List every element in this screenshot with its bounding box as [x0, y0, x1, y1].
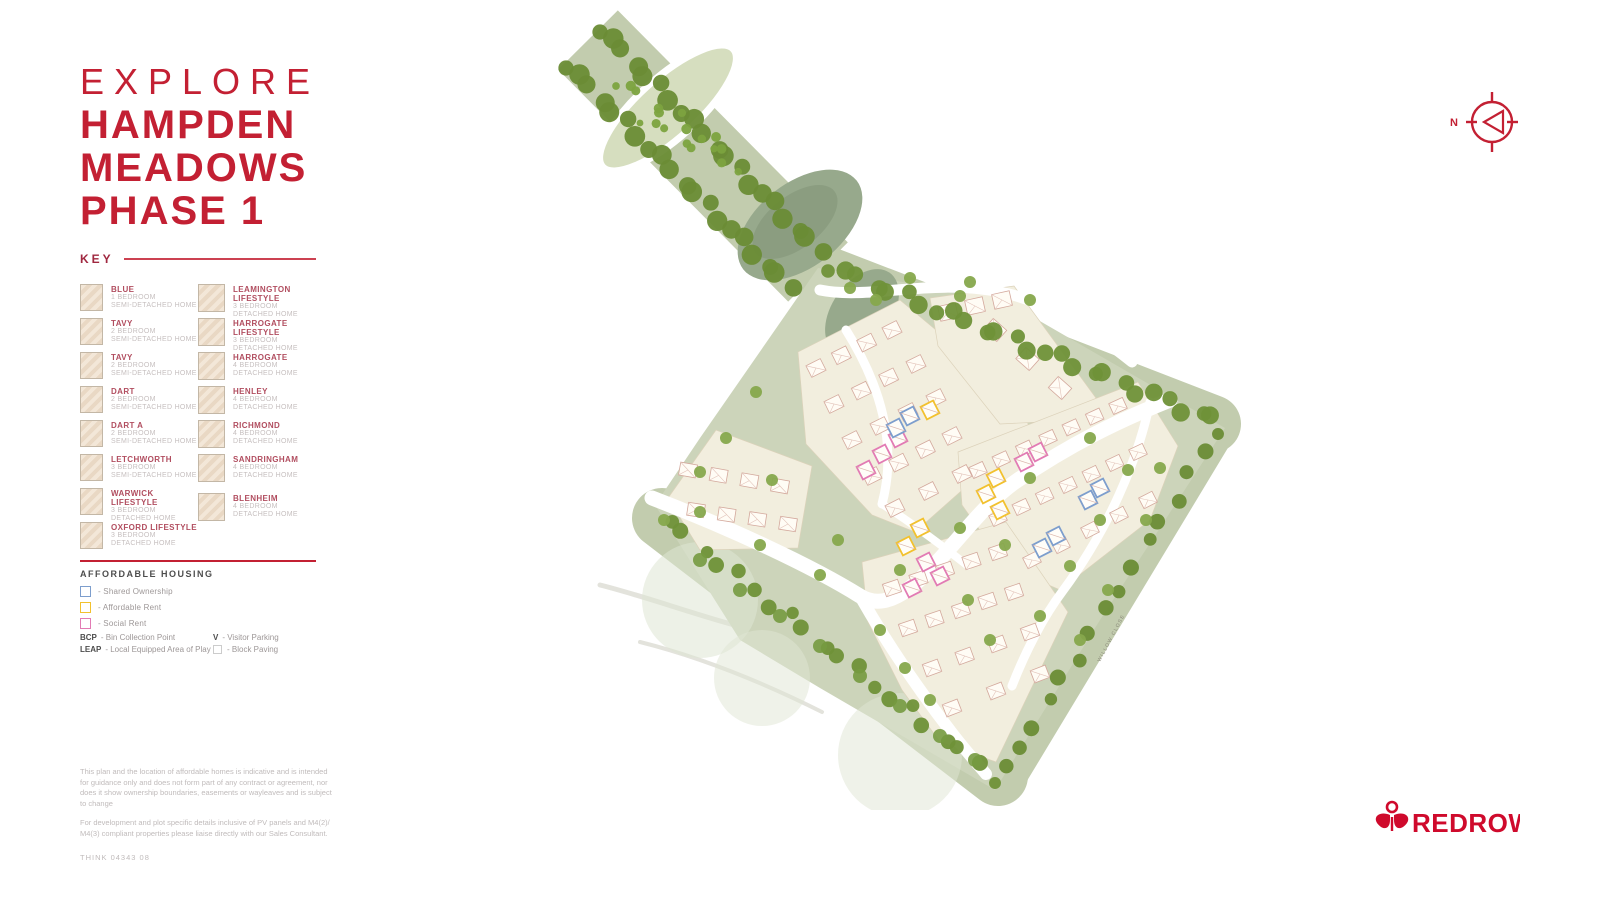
key-item[interactable]: TAVY2 BEDROOMSEMI-DETACHED HOME: [80, 318, 198, 344]
affordable-legend-label: - Social Rent: [98, 619, 146, 628]
site-plan-map[interactable]: WILLOW CLOSE: [540, 0, 1250, 810]
redrow-wordmark: REDROW: [1412, 808, 1520, 838]
house-plan-icon: [80, 284, 103, 311]
affordable-swatch-icon: [80, 586, 91, 597]
house-type-style: SEMI-DETACHED HOME: [111, 438, 197, 446]
house-type-style: SEMI-DETACHED HOME: [111, 370, 197, 378]
key-heading-label: KEY: [80, 252, 114, 266]
house-plan-icon: [198, 420, 225, 448]
visitor-parking-abbr: V: [213, 633, 218, 642]
house-type-bedrooms: 3 BEDROOM: [233, 303, 328, 311]
house-type-bedrooms: 4 BEDROOM: [233, 503, 298, 511]
key-item[interactable]: LEAMINGTON LIFESTYLE3 BEDROOMDETACHED HO…: [198, 284, 328, 310]
leap-abbr: LEAP: [80, 645, 101, 654]
key-item[interactable]: BLENHEIM4 BEDROOMDETACHED HOME: [198, 493, 328, 519]
house-plan-icon: [80, 488, 103, 515]
key-heading: KEY: [80, 252, 316, 266]
house-plan-icon: [198, 318, 225, 346]
house-type-name: OXFORD LIFESTYLE: [111, 523, 197, 532]
house-type-bedrooms: 4 BEDROOM: [233, 396, 298, 404]
key-heading-rule: [124, 258, 316, 260]
house-type-name: BLENHEIM: [233, 494, 298, 503]
header: EXPLORE HAMPDEN MEADOWS PHASE 1: [80, 60, 330, 233]
page-title-line-1: HAMPDEN: [80, 104, 330, 147]
house-type-style: SEMI-DETACHED HOME: [111, 472, 197, 480]
house-plan-icon: [198, 493, 225, 521]
key-item[interactable]: HARROGATE LIFESTYLE3 BEDROOMDETACHED HOM…: [198, 318, 328, 344]
north-compass-icon: N: [1420, 80, 1530, 170]
house-type-bedrooms: 1 BEDROOM: [111, 294, 197, 302]
key-item[interactable]: TAVY2 BEDROOMSEMI-DETACHED HOME: [80, 352, 198, 378]
house-plan-icon: [80, 522, 103, 549]
key-item[interactable]: WARWICK LIFESTYLE3 BEDROOMDETACHED HOME: [80, 488, 198, 514]
affordable-legend-row: - Shared Ownership: [80, 586, 330, 597]
key-item[interactable]: BLUE1 BEDROOMSEMI-DETACHED HOME: [80, 284, 198, 310]
affordable-legend-label: - Shared Ownership: [98, 587, 173, 596]
house-type-style: DETACHED HOME: [233, 511, 298, 519]
house-type-name: SANDRINGHAM: [233, 455, 298, 464]
house-type-name: WARWICK LIFESTYLE: [111, 489, 198, 507]
house-type-name: HARROGATE: [233, 353, 298, 362]
key-item[interactable]: OXFORD LIFESTYLE3 BEDROOMDETACHED HOME: [80, 522, 198, 548]
house-plan-icon: [80, 386, 103, 413]
house-plan-icon: [198, 352, 225, 380]
house-type-name: BLUE: [111, 285, 197, 294]
house-type-style: DETACHED HOME: [111, 540, 197, 548]
house-type-bedrooms: 4 BEDROOM: [233, 430, 298, 438]
house-plan-icon: [198, 454, 225, 482]
house-type-name: HENLEY: [233, 387, 298, 396]
page: EXPLORE HAMPDEN MEADOWS PHASE 1 KEY BLUE…: [0, 0, 1600, 900]
disclaimer-paragraph-1: This plan and the location of affordable…: [80, 767, 334, 809]
page-title-line-3: PHASE 1: [80, 190, 330, 233]
house-type-name: DART A: [111, 421, 197, 430]
house-type-style: DETACHED HOME: [233, 472, 298, 480]
house-type-name: HARROGATE LIFESTYLE: [233, 319, 328, 337]
house-type-bedrooms: 3 BEDROOM: [111, 532, 197, 540]
block-paving-swatch-icon: [213, 645, 222, 654]
house-type-style: DETACHED HOME: [233, 404, 298, 412]
house-type-bedrooms: 3 BEDROOM: [111, 464, 197, 472]
key-item[interactable]: SANDRINGHAM4 BEDROOMDETACHED HOME: [198, 454, 328, 480]
house-plan-icon: [198, 284, 225, 312]
house-type-bedrooms: 3 BEDROOM: [233, 337, 328, 345]
visitor-parking-text: - Visitor Parking: [222, 633, 278, 642]
page-kicker: EXPLORE: [80, 60, 330, 104]
key-item[interactable]: DART2 BEDROOMSEMI-DETACHED HOME: [80, 386, 198, 412]
disclaimer-paragraph-2: For development and plot specific detail…: [80, 818, 334, 839]
house-type-style: SEMI-DETACHED HOME: [111, 302, 197, 310]
affordable-legend-row: - Social Rent: [80, 618, 330, 629]
map-abbreviations: BCP - Bin Collection Point V - Visitor P…: [80, 633, 330, 657]
house-plan-icon: [198, 386, 225, 414]
affordable-swatch-icon: [80, 618, 91, 629]
house-plan-icon: [80, 318, 103, 345]
house-type-name: RICHMOND: [233, 421, 298, 430]
house-type-bedrooms: 2 BEDROOM: [111, 430, 197, 438]
affordable-housing-heading: AFFORDABLE HOUSING: [80, 569, 330, 579]
key-item[interactable]: HARROGATE4 BEDROOMDETACHED HOME: [198, 352, 328, 378]
house-type-bedrooms: 2 BEDROOM: [111, 328, 197, 336]
compass-north-label: N: [1450, 117, 1458, 129]
affordable-swatch-icon: [80, 602, 91, 613]
bcp-text: - Bin Collection Point: [101, 633, 175, 642]
house-type-bedrooms: 3 BEDROOM: [111, 507, 198, 515]
house-type-style: SEMI-DETACHED HOME: [111, 404, 197, 412]
key-column-left: BLUE1 BEDROOMSEMI-DETACHED HOMETAVY2 BED…: [80, 284, 198, 556]
house-type-name: DART: [111, 387, 197, 396]
house-type-name: LEAMINGTON LIFESTYLE: [233, 285, 328, 303]
house-type-bedrooms: 2 BEDROOM: [111, 396, 197, 404]
bcp-abbr: BCP: [80, 633, 97, 642]
house-plan-icon: [80, 454, 103, 481]
house-plan-icon: [80, 352, 103, 379]
leap-text: - Local Equipped Area of Play: [105, 645, 210, 654]
house-type-name: TAVY: [111, 353, 197, 362]
page-title-line-2: MEADOWS: [80, 147, 330, 190]
plan-reference-number: THINK 04343 08: [80, 853, 334, 864]
house-type-style: SEMI-DETACHED HOME: [111, 336, 197, 344]
affordable-housing-legend: AFFORDABLE HOUSING - Shared Ownership- A…: [80, 569, 330, 634]
redrow-logo: REDROW: [1350, 795, 1520, 850]
key-item[interactable]: HENLEY4 BEDROOMDETACHED HOME: [198, 386, 328, 412]
house-type-style: DETACHED HOME: [233, 370, 298, 378]
key-item[interactable]: RICHMOND4 BEDROOMDETACHED HOME: [198, 420, 328, 446]
affordable-legend-label: - Affordable Rent: [98, 603, 161, 612]
key-item[interactable]: LETCHWORTH3 BEDROOMSEMI-DETACHED HOME: [80, 454, 198, 480]
section-divider: [80, 560, 316, 562]
block-paving-text: - Block Paving: [227, 645, 278, 654]
redrow-flower-icon: [1376, 802, 1408, 831]
house-plan-icon: [80, 420, 103, 447]
house-type-name: TAVY: [111, 319, 197, 328]
key-column-right: LEAMINGTON LIFESTYLE3 BEDROOMDETACHED HO…: [198, 284, 328, 527]
house-type-bedrooms: 4 BEDROOM: [233, 464, 298, 472]
affordable-legend-row: - Affordable Rent: [80, 602, 330, 613]
disclaimer: This plan and the location of affordable…: [80, 767, 334, 864]
key-item[interactable]: DART A2 BEDROOMSEMI-DETACHED HOME: [80, 420, 198, 446]
house-type-bedrooms: 2 BEDROOM: [111, 362, 197, 370]
house-type-bedrooms: 4 BEDROOM: [233, 362, 298, 370]
house-type-style: DETACHED HOME: [233, 438, 298, 446]
house-type-name: LETCHWORTH: [111, 455, 197, 464]
